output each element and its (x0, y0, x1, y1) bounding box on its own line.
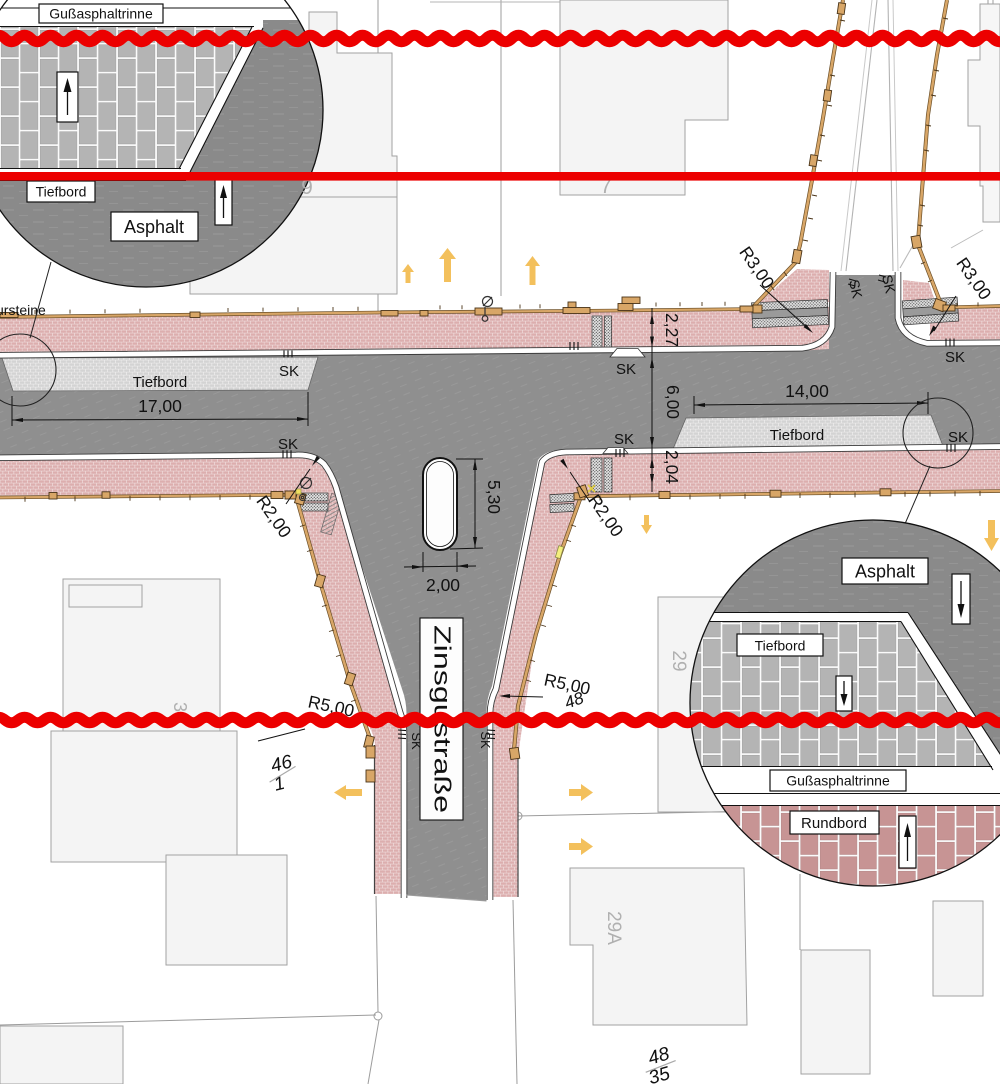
svg-text:6,00: 6,00 (663, 385, 683, 419)
svg-text:Tiefbord: Tiefbord (133, 374, 187, 391)
svg-text:SK: SK (478, 731, 493, 749)
svg-text:SK: SK (945, 349, 965, 366)
svg-text:2,27: 2,27 (662, 313, 682, 347)
svg-text:Tiefbord: Tiefbord (755, 638, 806, 654)
svg-text:Gußasphaltrinne: Gußasphaltrinne (49, 6, 153, 22)
svg-text:Gußasphaltrinne: Gußasphaltrinne (786, 773, 890, 789)
svg-text:SK: SK (278, 436, 298, 453)
svg-text:Tiefbord: Tiefbord (36, 184, 87, 200)
svg-text:SK: SK (948, 429, 968, 446)
svg-text:3: 3 (170, 702, 190, 712)
svg-text:14,00: 14,00 (785, 381, 829, 401)
svg-text:2,04: 2,04 (662, 450, 682, 484)
svg-text:Asphalt: Asphalt (855, 562, 915, 582)
svg-text:Rundbord: Rundbord (801, 815, 867, 832)
svg-text:SK: SK (614, 431, 634, 448)
svg-text:SK: SK (279, 363, 299, 380)
svg-text:29A: 29A (603, 911, 624, 945)
svg-text:2,00: 2,00 (426, 575, 460, 595)
svg-text:5,30: 5,30 (484, 480, 504, 514)
svg-text:SK: SK (616, 361, 636, 378)
svg-text:Tiefbord: Tiefbord (770, 427, 824, 444)
svg-text:17,00: 17,00 (138, 396, 182, 416)
svg-text:Asphalt: Asphalt (124, 217, 184, 237)
svg-text:29: 29 (668, 650, 689, 671)
